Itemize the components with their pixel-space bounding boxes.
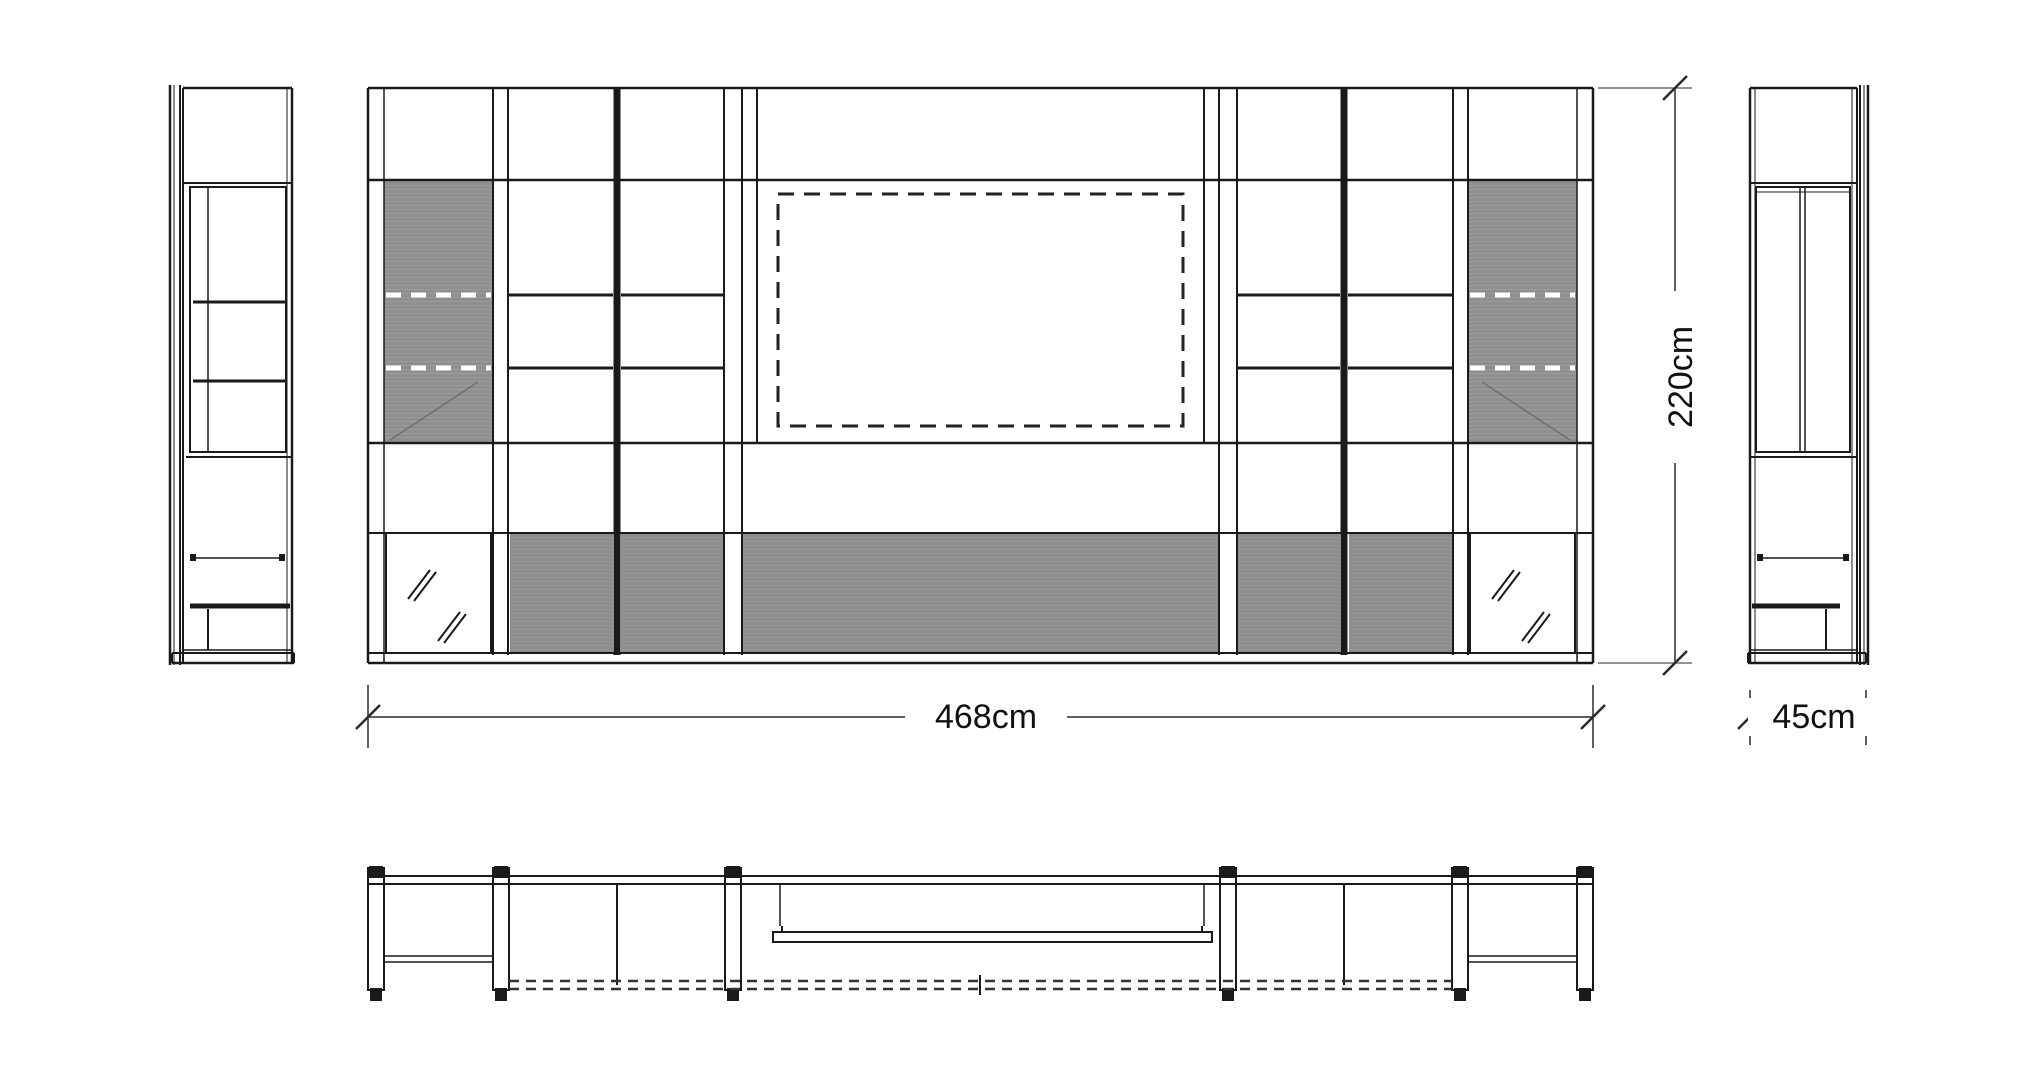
- front-elevation: [368, 88, 1593, 663]
- right-side-display-case: [1750, 187, 1857, 457]
- left-side-hanging-rail: [190, 554, 285, 561]
- display-panel-left: [384, 180, 493, 443]
- niche-shelves: [508, 295, 1453, 368]
- right-side-plinth: [1748, 653, 1866, 663]
- left-wall-panel: [170, 85, 180, 665]
- height-dimension-label: 220cm: [1662, 291, 1700, 463]
- left-side-lower-shelf: [190, 606, 290, 650]
- technical-drawing-sheet: 468cm 220cm 45cm: [0, 0, 2022, 1080]
- glass-base-door-left: [386, 533, 491, 653]
- depth-dimension-label: 45cm: [1748, 698, 1880, 736]
- width-dimension-label: 468cm: [905, 698, 1067, 736]
- left-side-plinth: [172, 653, 294, 663]
- left-side-display-case: [186, 187, 292, 457]
- plan-view: [368, 866, 1593, 1001]
- wall-unit-drawing: [0, 0, 2022, 1080]
- right-wall-panel: [1860, 85, 1868, 665]
- tv-dashed-outline: [778, 194, 1183, 426]
- display-panel-right: [1468, 180, 1577, 443]
- base-cabinets-gray: [510, 533, 1452, 653]
- right-side-hanging-rail: [1757, 554, 1849, 561]
- glass-base-door-right: [1470, 533, 1575, 653]
- right-side-lower-shelf: [1752, 606, 1840, 650]
- panel-dashed-lines: [386, 295, 1575, 368]
- right-side-elevation: [1748, 85, 1868, 665]
- plan-floating-shelf: [773, 884, 1212, 942]
- left-side-elevation: [170, 85, 294, 665]
